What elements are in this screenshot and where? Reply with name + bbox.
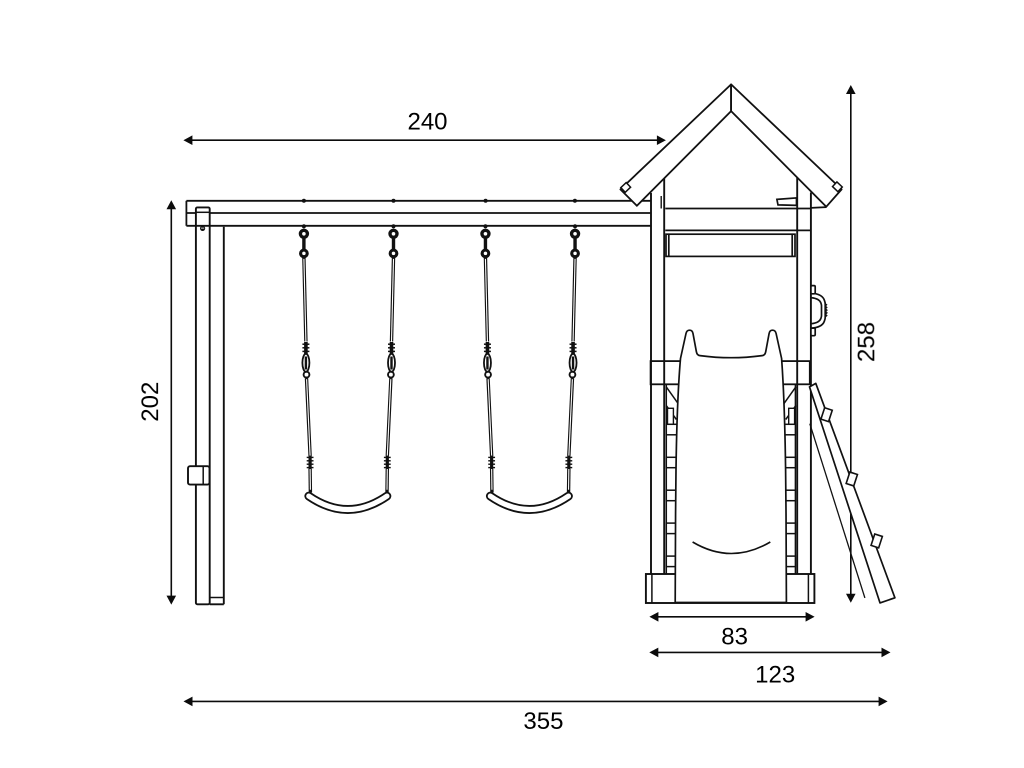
svg-text:258: 258 (853, 322, 880, 362)
svg-text:355: 355 (523, 708, 563, 735)
svg-text:240: 240 (407, 108, 447, 135)
svg-text:123: 123 (755, 661, 795, 688)
svg-text:202: 202 (137, 382, 164, 422)
svg-text:83: 83 (721, 623, 748, 650)
